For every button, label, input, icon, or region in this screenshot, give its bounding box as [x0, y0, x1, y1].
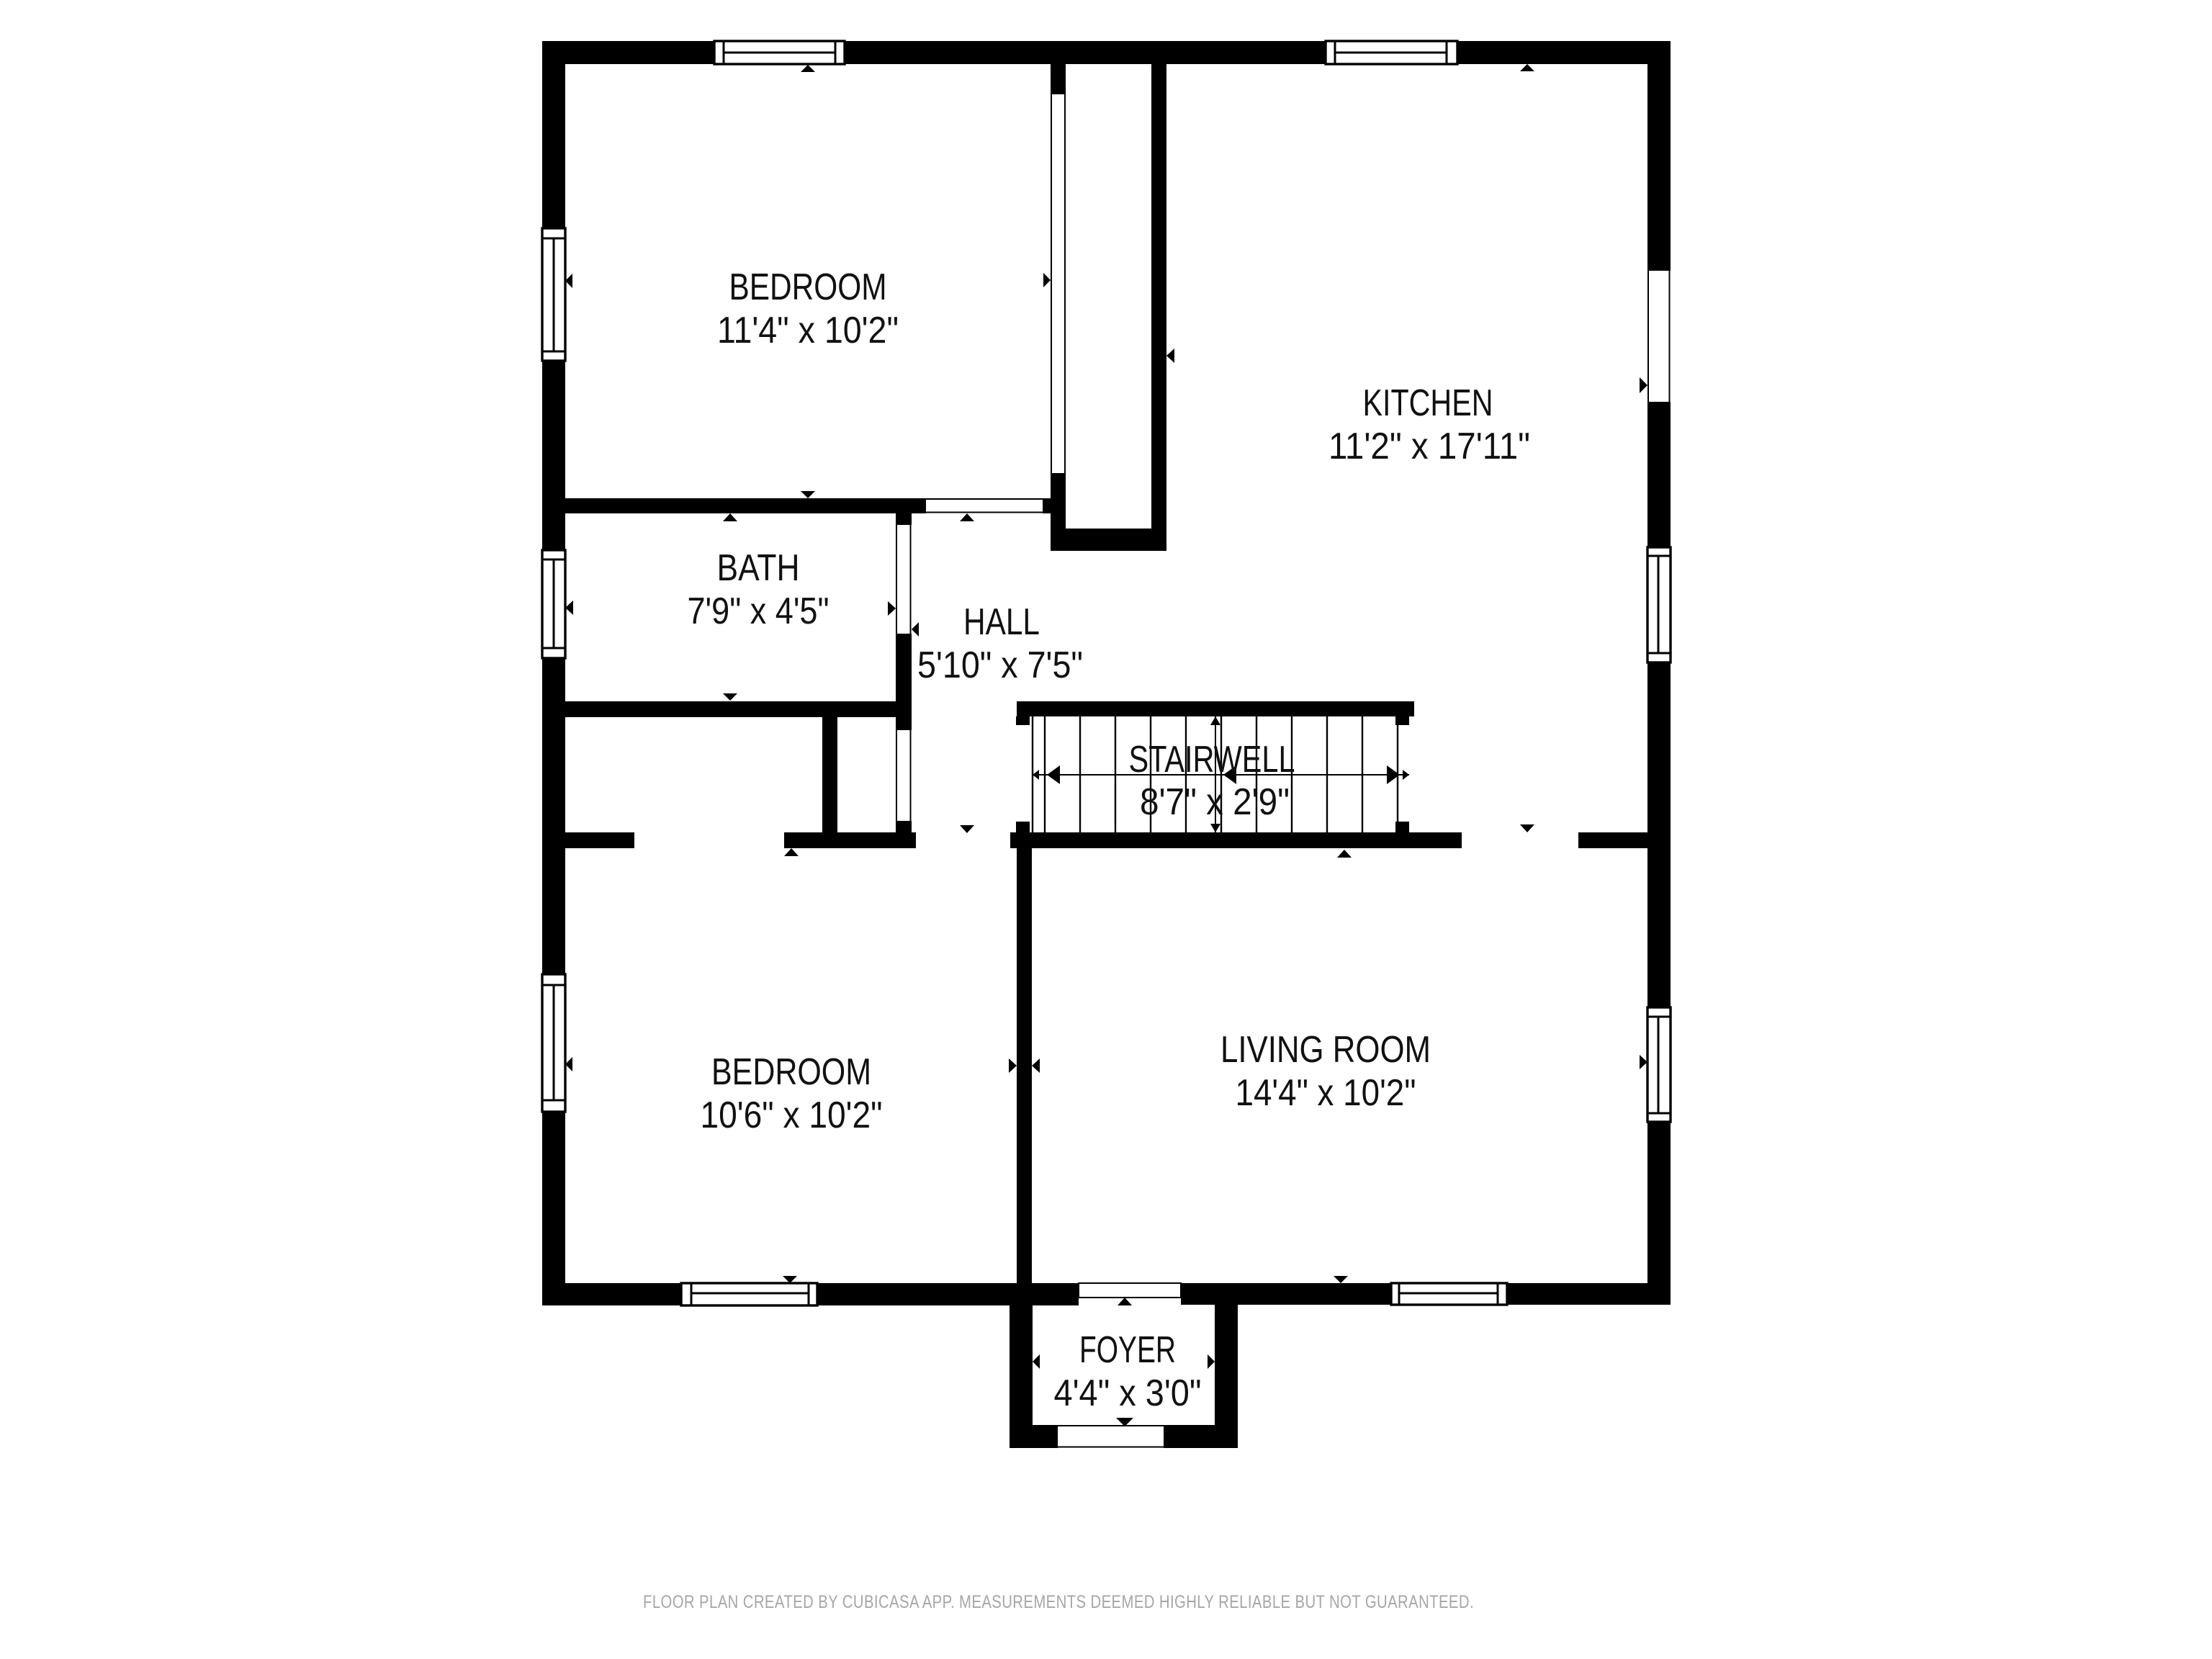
svg-text:HALL: HALL	[963, 601, 1040, 643]
svg-text:4'4" x 3'0": 4'4" x 3'0"	[1054, 1372, 1202, 1414]
svg-text:11'2" x 17'11": 11'2" x 17'11"	[1328, 426, 1530, 467]
svg-text:KITCHEN: KITCHEN	[1363, 382, 1493, 424]
svg-text:FOYER: FOYER	[1079, 1329, 1176, 1371]
svg-text:STAIRWELL: STAIRWELL	[1129, 739, 1295, 781]
svg-text:BEDROOM: BEDROOM	[729, 266, 887, 308]
svg-text:BATH: BATH	[717, 547, 800, 589]
svg-text:LIVING ROOM: LIVING ROOM	[1220, 1029, 1431, 1071]
svg-text:7'9" x 4'5": 7'9" x 4'5"	[688, 590, 829, 632]
svg-text:11'4" x 10'2": 11'4" x 10'2"	[717, 310, 899, 351]
svg-text:14'4" x 10'2": 14'4" x 10'2"	[1236, 1072, 1416, 1114]
svg-text:BEDROOM: BEDROOM	[711, 1051, 871, 1093]
svg-text:10'6" x 10'2": 10'6" x 10'2"	[701, 1094, 883, 1136]
svg-text:5'10" x 7'5": 5'10" x 7'5"	[917, 644, 1083, 686]
svg-text:FLOOR PLAN CREATED BY CUBICASA: FLOOR PLAN CREATED BY CUBICASA APP. MEAS…	[643, 1592, 1474, 1612]
svg-text:8'7" x 2'9": 8'7" x 2'9"	[1140, 781, 1290, 823]
